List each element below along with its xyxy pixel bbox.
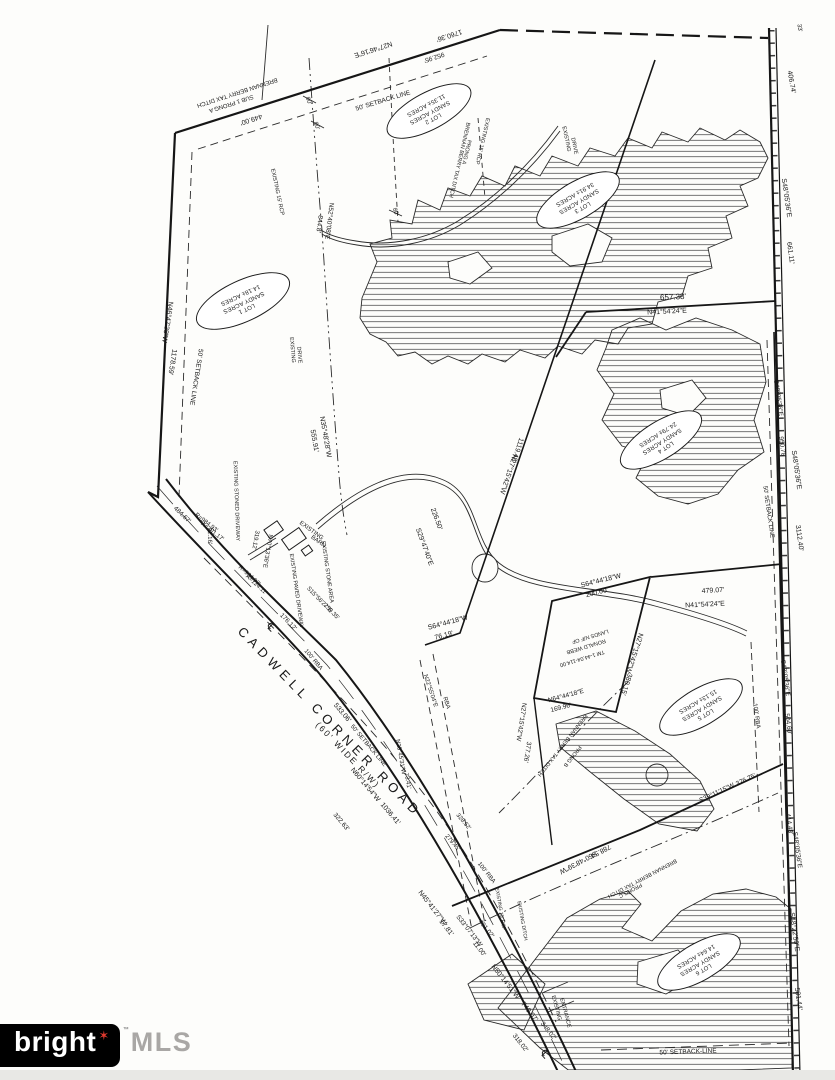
map-label: DRIVE xyxy=(569,137,578,155)
road-name-label: CADWELL CORNER ROAD xyxy=(235,624,425,820)
map-label: S48°05'36"E xyxy=(790,450,802,490)
map-label: S48°05'36"E xyxy=(791,831,803,868)
mls-wordmark: MLS xyxy=(131,1027,193,1058)
map-label: EXISTING 15' RCP xyxy=(269,168,285,216)
map-label: 749.07' xyxy=(519,1001,539,1023)
map-label: 376.75' xyxy=(735,772,757,787)
map-label: 319.12' xyxy=(250,530,259,550)
map-label: ℄ xyxy=(264,620,278,634)
map-label: 406.74' xyxy=(786,70,797,94)
map-label: S39°11'15"W xyxy=(698,782,735,804)
bright-wordmark: bright xyxy=(14,1026,96,1057)
map-label: S64°44'18"W xyxy=(580,573,622,590)
map-label: 226.50' xyxy=(429,507,443,531)
map-label: N41°54'24"E xyxy=(685,600,725,609)
map-label: 80' xyxy=(304,96,312,105)
map-label: EXISTING DITCH xyxy=(516,901,529,941)
map-label: 348.02' xyxy=(539,1021,558,1042)
map-label: 100' RBA xyxy=(303,648,324,671)
map-label: 1760.36' xyxy=(435,28,462,43)
map-label: 318.02' xyxy=(511,1033,530,1054)
map-label: 328.52' xyxy=(454,813,471,832)
lot-label-ellipse: LOT 3SANDY ACRES34.91± ACRES xyxy=(528,160,628,240)
bright-logo-box: bright✶ xyxy=(0,1024,120,1067)
map-label: 279.45' xyxy=(443,834,460,853)
map-label: 100' RBA xyxy=(751,703,760,729)
map-label: 80' xyxy=(391,207,399,216)
lot-label-ellipse: LOT 1SANDY ACRES14.18± ACRES xyxy=(188,260,298,341)
map-label: 844.8' xyxy=(314,215,323,233)
map-label: 484.67' xyxy=(172,505,192,525)
map-label: 657.38' xyxy=(660,292,686,302)
map-label: 661.11' xyxy=(785,242,795,265)
map-label: 581.44' xyxy=(793,987,803,1011)
map-label: 952.95' xyxy=(423,50,445,63)
map-label: 555.91' xyxy=(309,429,320,453)
plat-map-page: N27°46'16"E1760.36'952.95'50' SETBACK LI… xyxy=(0,0,835,1080)
map-label: N41°54'24"E xyxy=(647,307,687,316)
map-label: 80' xyxy=(312,121,320,130)
map-label: EXISTING PAVED DRIVEWAY xyxy=(288,553,304,628)
map-label: 11.00' xyxy=(471,940,487,958)
lot-label-ellipse: LOT 5SANDY ACRES15.13± ACRES xyxy=(651,667,751,747)
map-label-layer: N27°46'16"E1760.36'952.95'50' SETBACK LI… xyxy=(0,0,835,1080)
map-label: N70°13'36"E xyxy=(261,534,273,569)
map-label: 100' RBA xyxy=(476,861,496,885)
map-label: 50' SETBACK LINE xyxy=(188,348,204,405)
map-label: 176.12' xyxy=(278,612,298,632)
map-label: 169.96' xyxy=(550,702,572,714)
map-label: N27°46'16"E xyxy=(353,40,393,59)
map-label: S64°44'18"W xyxy=(427,614,469,631)
map-label: 401.02' xyxy=(477,919,496,940)
map-label: ℄ xyxy=(538,1047,552,1061)
map-label: N27°15'42"W xyxy=(515,702,528,741)
map-label: N35°48'28"W xyxy=(318,416,332,458)
map-label: 1119.48' xyxy=(510,437,525,464)
map-label: N52°40'08"E xyxy=(323,202,334,239)
map-label: 479.07' xyxy=(701,587,724,595)
map-label: EXISTING STONED DRIVEWAY xyxy=(232,461,241,541)
map-label: 788.54' xyxy=(588,843,611,860)
map-label: N22°55'04"E xyxy=(422,674,438,708)
map-label: DRIVE xyxy=(295,346,302,363)
map-label: EXISTING 15' RCP xyxy=(493,887,506,931)
map-label: S48°05'36"E xyxy=(779,659,791,696)
scan-edge-band xyxy=(0,1070,835,1080)
map-label: PRONG B xyxy=(562,744,582,768)
map-label: 33' xyxy=(795,24,802,33)
map-label: 76.19' xyxy=(434,630,454,642)
map-label: 50' SETBACK-LINE xyxy=(659,1048,716,1057)
map-label: BRENNAN BERRY TAX DITCH xyxy=(536,713,588,778)
map-label: 1036.41' xyxy=(379,802,401,827)
map-label: S48°05'36"E xyxy=(780,178,792,218)
map-label: 259.35' xyxy=(322,603,340,621)
map-label: N27°15'42"W xyxy=(624,632,644,674)
map-label: 1178.59' xyxy=(166,349,177,376)
map-label: 322.63' xyxy=(332,812,351,833)
lot-label-ellipse: LOT 4SANDY ACRES24.79± ACRES xyxy=(611,399,711,481)
map-label: N46°47'38"W xyxy=(160,301,173,343)
map-label: 50' SETBACK LINE xyxy=(761,486,774,539)
bright-star-icon: ✶ xyxy=(98,1028,109,1043)
map-label: EXISTING 15' RCP xyxy=(474,117,491,165)
map-label: N64°44'18"E xyxy=(547,688,584,704)
map-label: EXISTING STONE AREA xyxy=(320,541,335,603)
map-label: 200.00' xyxy=(585,587,609,599)
map-label: 377.26' xyxy=(522,741,532,763)
map-label: N23°45'31"W xyxy=(394,739,406,775)
map-label: 950.78' xyxy=(777,436,787,458)
brightmls-logo: bright✶ ™ MLS xyxy=(0,1024,192,1067)
map-label: S48°22'50"E xyxy=(788,912,800,952)
map-label: 3112.40' xyxy=(794,525,805,552)
lot-label-ellipse: LOT 6SANDY ACRES14.64± ACRES xyxy=(649,922,749,1002)
map-label: N50°14'51"W xyxy=(489,963,520,1000)
map-label: S48°05'36"E xyxy=(772,379,784,416)
map-label: 449.00' xyxy=(239,112,263,126)
map-label: A=124.11' xyxy=(244,574,268,596)
trademark-symbol: ™ xyxy=(123,1027,129,1033)
map-label: 380.15' xyxy=(619,672,633,696)
map-label: RBA xyxy=(441,696,451,710)
map-label: 504.60' xyxy=(783,713,793,735)
map-label: S29°47'40"E xyxy=(414,527,434,566)
